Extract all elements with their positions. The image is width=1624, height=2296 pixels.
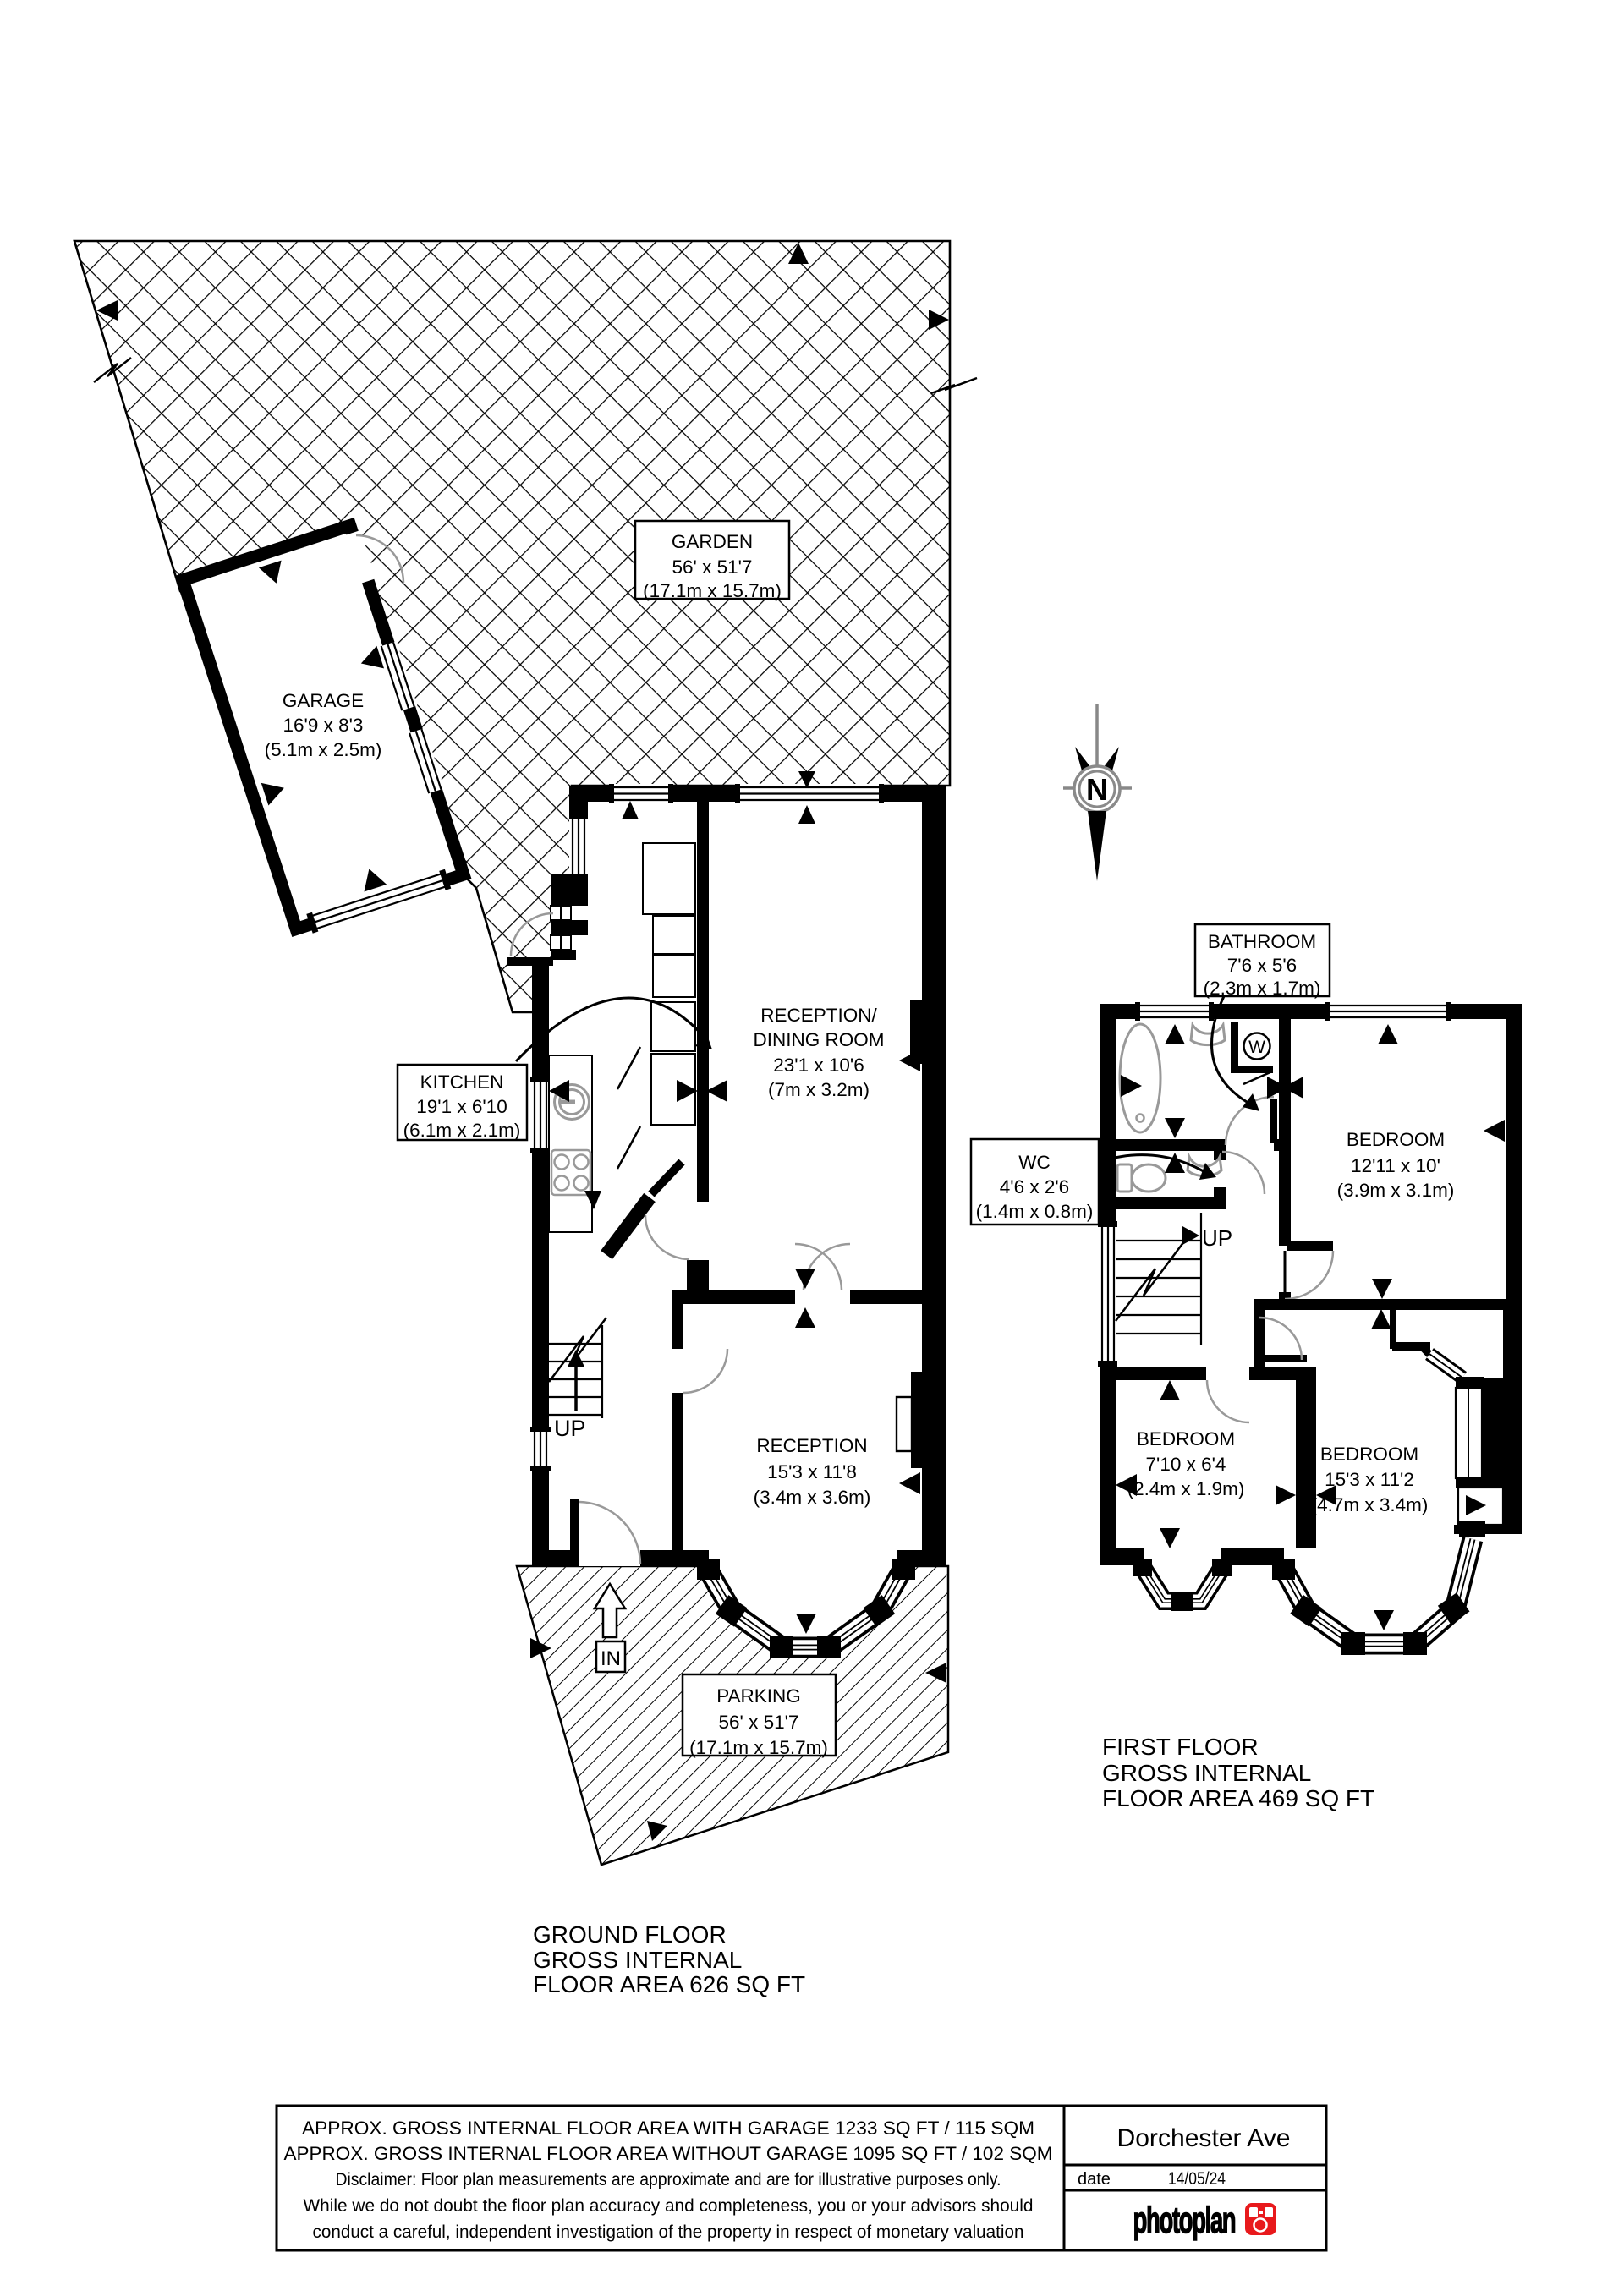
- svg-text:23'1 x 10'6: 23'1 x 10'6: [773, 1055, 864, 1076]
- svg-text:date: date: [1078, 2170, 1111, 2189]
- svg-text:(3.4m x 3.6m): (3.4m x 3.6m): [754, 1487, 871, 1508]
- svg-text:RECEPTION/: RECEPTION/: [760, 1005, 877, 1026]
- svg-text:7'10 x 6'4: 7'10 x 6'4: [1146, 1454, 1226, 1475]
- svg-text:BEDROOM: BEDROOM: [1320, 1444, 1418, 1465]
- svg-text:APPROX. GROSS INTERNAL FLOOR A: APPROX. GROSS INTERNAL FLOOR AREA WITH G…: [302, 2118, 1034, 2139]
- svg-text:(1.4m x 0.8m): (1.4m x 0.8m): [976, 1201, 1094, 1222]
- svg-text:conduct a careful, independent: conduct a careful, independent investiga…: [313, 2222, 1024, 2242]
- svg-text:PARKING: PARKING: [716, 1685, 801, 1707]
- svg-text:(17.1m x 15.7m): (17.1m x 15.7m): [643, 580, 782, 601]
- svg-text:FLOOR AREA 626 SQ FT: FLOOR AREA 626 SQ FT: [533, 1971, 805, 1997]
- svg-text:16'9 x 8'3: 16'9 x 8'3: [283, 715, 364, 736]
- svg-text:56' x 51'7: 56' x 51'7: [719, 1712, 799, 1733]
- svg-text:4'6 x 2'6: 4'6 x 2'6: [1000, 1176, 1069, 1197]
- svg-text:WC: WC: [1018, 1152, 1051, 1173]
- svg-text:(2.3m x 1.7m): (2.3m x 1.7m): [1204, 978, 1321, 999]
- svg-text:GROSS INTERNAL: GROSS INTERNAL: [1102, 1760, 1311, 1786]
- svg-text:14/05/24: 14/05/24: [1168, 2169, 1226, 2189]
- svg-text:UP: UP: [554, 1416, 586, 1441]
- svg-text:(5.1m x 2.5m): (5.1m x 2.5m): [265, 739, 382, 760]
- svg-text:BATHROOM: BATHROOM: [1208, 931, 1316, 952]
- svg-text:KITCHEN: KITCHEN: [420, 1071, 504, 1093]
- svg-text:FIRST FLOOR: FIRST FLOOR: [1102, 1734, 1259, 1760]
- svg-text:GARAGE: GARAGE: [283, 690, 364, 711]
- svg-text:(2.4m x 1.9m): (2.4m x 1.9m): [1127, 1478, 1245, 1499]
- svg-text:Dorchester Ave: Dorchester Ave: [1117, 2124, 1291, 2152]
- svg-text:15'3 x 11'2: 15'3 x 11'2: [1325, 1469, 1414, 1490]
- svg-text:FLOOR AREA 469 SQ FT: FLOOR AREA 469 SQ FT: [1102, 1785, 1374, 1811]
- svg-text:GROSS INTERNAL: GROSS INTERNAL: [533, 1947, 742, 1973]
- svg-text:(3.9m x 3.1m): (3.9m x 3.1m): [1337, 1180, 1455, 1201]
- svg-text:Disclaimer: Floor plan measure: Disclaimer: Floor plan measurements are …: [336, 2169, 1001, 2189]
- svg-text:19'1 x 6'10: 19'1 x 6'10: [416, 1096, 507, 1117]
- svg-text:BEDROOM: BEDROOM: [1137, 1428, 1235, 1449]
- svg-text:(4.7m x 3.4m): (4.7m x 3.4m): [1311, 1494, 1429, 1515]
- svg-text:12'11 x 10': 12'11 x 10': [1351, 1155, 1440, 1176]
- svg-text:(17.1m x 15.7m): (17.1m x 15.7m): [689, 1737, 828, 1758]
- svg-text:BEDROOM: BEDROOM: [1347, 1129, 1445, 1150]
- svg-text:15'3 x 11'8: 15'3 x 11'8: [767, 1461, 857, 1482]
- svg-text:N: N: [1086, 772, 1108, 807]
- svg-text:W: W: [1248, 1038, 1265, 1057]
- svg-text:APPROX. GROSS INTERNAL FLOOR A: APPROX. GROSS INTERNAL FLOOR AREA WITHOU…: [284, 2143, 1053, 2164]
- svg-text:photoplan: photoplan: [1133, 2199, 1236, 2240]
- svg-text:While we do not doubt the floo: While we do not doubt the floor plan acc…: [304, 2195, 1034, 2216]
- svg-text:RECEPTION: RECEPTION: [756, 1435, 867, 1456]
- svg-text:GROUND FLOOR: GROUND FLOOR: [533, 1921, 727, 1948]
- svg-text:(7m x 3.2m): (7m x 3.2m): [768, 1079, 870, 1100]
- svg-text:DINING ROOM: DINING ROOM: [754, 1029, 885, 1050]
- svg-text:IN: IN: [601, 1647, 621, 1670]
- svg-text:(6.1m x 2.1m): (6.1m x 2.1m): [403, 1120, 521, 1141]
- svg-text:7'6 x 5'6: 7'6 x 5'6: [1227, 955, 1297, 976]
- svg-text:UP: UP: [1202, 1225, 1232, 1251]
- svg-text:56' x 51'7: 56' x 51'7: [672, 556, 753, 578]
- svg-text:GARDEN: GARDEN: [672, 531, 753, 552]
